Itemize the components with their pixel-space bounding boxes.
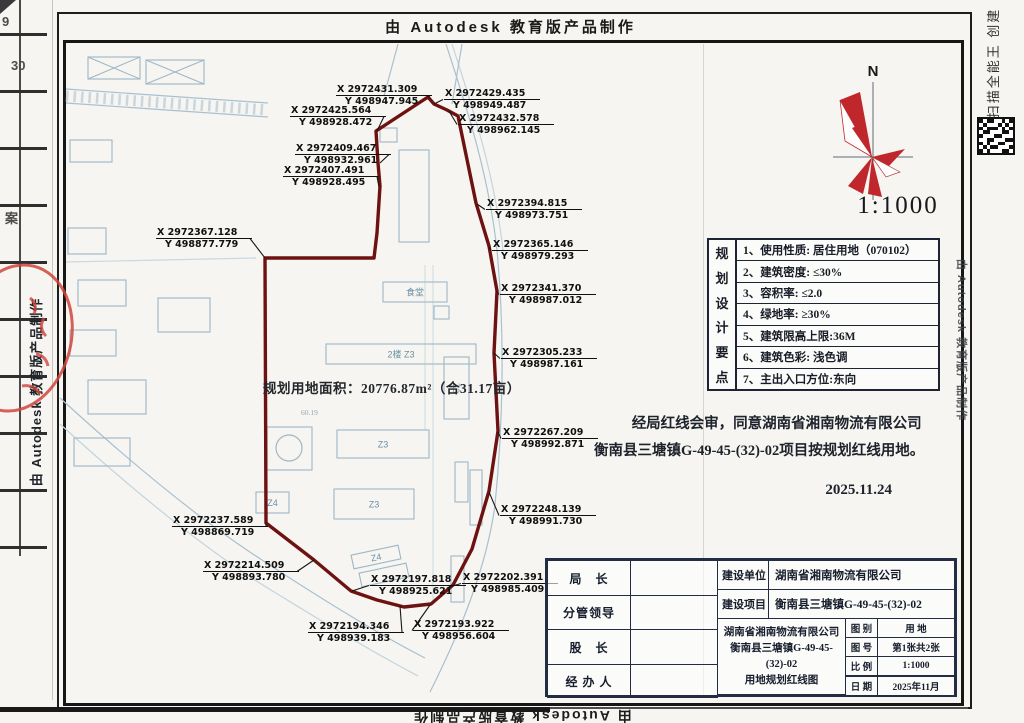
- coordinate-label: X 2972214.509Y 498893.780: [203, 560, 299, 583]
- coordinate-x: X 2972432.578: [458, 113, 554, 125]
- building-outline: [455, 462, 468, 502]
- coordinate-y: Y 498987.161: [501, 359, 597, 370]
- project-value: 衡南县三塘镇G-49-45-(32)-02: [768, 589, 955, 619]
- coordinate-label: X 2972431.309Y 498947.945: [336, 84, 432, 107]
- coordinate-x: X 2972409.467: [295, 143, 391, 155]
- coordinate-y: Y 498869.719: [172, 527, 268, 538]
- scanned-document-page: 930案 由 Autodesk 教育版产品制作 食堂2楼 Z3Z3Z3Z3Z4Z…: [0, 0, 1024, 723]
- scanner-watermark: 扫描全能王 创建: [983, 0, 999, 128]
- building-outline: [434, 306, 449, 319]
- requirement-item: 5、建筑限高上限:36M: [737, 326, 938, 347]
- official-signature-cell: [630, 664, 718, 698]
- coordinate-x: X 2972214.509: [203, 560, 299, 572]
- coordinate-y: Y 498991.730: [500, 516, 596, 527]
- coordinate-x: X 2972305.233: [501, 347, 597, 359]
- building-outline: Z4: [256, 492, 289, 513]
- coordinate-leader-line: [434, 100, 443, 105]
- planning-requirements-table: 规划设计要点 1、使用性质: 居住用地（070102）2、建筑密度: ≤30%3…: [707, 238, 940, 391]
- coordinate-y: Y 498928.472: [290, 117, 386, 128]
- coordinate-x: X 2972237.589: [172, 515, 268, 527]
- approval-date: 2025.11.24: [594, 477, 960, 504]
- coordinate-label: X 2972194.346Y 498939.183: [308, 621, 404, 644]
- approval-line2: 衡南县三塘镇G-49-45-(32)-02项目按规划红线用地。: [594, 438, 960, 465]
- requirement-item: 2、建筑密度: ≤30%: [737, 261, 938, 282]
- coordinate-label: X 2972341.370Y 498987.012: [500, 283, 596, 306]
- building-outline: Z3: [337, 430, 429, 458]
- coordinate-x: X 2972267.209: [502, 427, 598, 439]
- official-signature-cell: [630, 629, 718, 665]
- requirement-item: 7、主出入口方位:东向: [737, 369, 938, 389]
- side-title-char: 规: [715, 243, 728, 262]
- railway-band: [66, 89, 268, 117]
- org-line2: 衡南县三塘镇G-49-45-(32)-02: [718, 641, 845, 673]
- building-outline: [158, 298, 210, 332]
- official-signature-cell: [630, 560, 718, 596]
- coordinate-label: X 2972267.209Y 498992.871: [502, 427, 598, 450]
- building-label: Z3: [378, 440, 389, 450]
- requirement-item: 1、使用性质: 居住用地（070102）: [737, 240, 938, 261]
- building-outline: Z3: [334, 489, 414, 519]
- unit-value: 湖南省湘南物流有限公司: [768, 560, 955, 590]
- official-role-label: 股 长: [547, 629, 631, 665]
- coordinate-x: X 2972407.491: [283, 165, 379, 177]
- official-role-label: 经 办 人: [547, 664, 631, 698]
- coordinate-y: Y 498962.145: [458, 125, 554, 136]
- buildings-layer: 食堂2楼 Z3Z3Z3Z3Z4Z4: [68, 57, 482, 602]
- autodesk-banner-bottom: 由 Autodesk 教育版产品制作: [382, 706, 662, 723]
- coordinate-x: X 2972193.922: [413, 619, 509, 631]
- side-title-char: 计: [715, 317, 728, 336]
- coordinate-y: Y 498973.751: [486, 210, 582, 221]
- org-line1: 湖南省湘南物流有限公司: [724, 625, 840, 641]
- approval-note: 经局红线会审，同意湖南省湘南物流有限公司 衡南县三塘镇G-49-45-(32)-…: [594, 411, 960, 504]
- drawing-title: 用地规划红线图: [745, 673, 819, 689]
- side-title-char: 设: [715, 293, 728, 312]
- coordinate-leader-line: [352, 586, 369, 592]
- coordinate-y: Y 498992.871: [502, 439, 598, 450]
- coordinate-x: X 2972194.346: [308, 621, 404, 633]
- meta-value: 第1张共2张: [877, 637, 955, 657]
- building-outline: [68, 228, 106, 254]
- coordinate-leader-line: [297, 560, 314, 572]
- building-label: 食堂: [406, 287, 424, 298]
- autodesk-banner-right: 由 Autodesk 教育版产品制作: [954, 225, 970, 455]
- coordinate-y: Y 498925.621: [370, 586, 466, 597]
- meta-label: 图 号: [845, 637, 878, 657]
- unit-label: 建设单位: [717, 560, 769, 590]
- coordinate-x: X 2972431.309: [336, 84, 432, 96]
- building-outline: [146, 60, 204, 84]
- coordinate-label: X 2972193.922Y 498956.604: [413, 619, 509, 642]
- coordinate-x: X 2972202.391: [462, 572, 558, 584]
- approval-line1: 经局红线会审，同意湖南省湘南物流有限公司: [594, 411, 960, 438]
- circular-structure: [276, 435, 302, 461]
- side-title-char: 点: [715, 367, 728, 386]
- coordinate-label: X 2972407.491Y 498928.495: [283, 165, 379, 188]
- coordinate-label: X 2972237.589Y 498869.719: [172, 515, 268, 538]
- coordinate-y: Y 498956.604: [413, 631, 509, 642]
- coordinate-label: X 2972429.435Y 498949.487: [444, 88, 540, 111]
- official-role-label: 局 长: [547, 560, 631, 596]
- building-outline: [267, 427, 312, 470]
- north-arrow: N: [833, 63, 913, 200]
- coordinate-label: X 2972409.467Y 498932.961: [295, 143, 391, 166]
- requirement-item: 6、建筑色彩: 浅色调: [737, 347, 938, 368]
- coordinate-x: X 2972197.818: [370, 574, 466, 586]
- coordinate-x: X 2972341.370: [500, 283, 596, 295]
- building-outline: [399, 150, 429, 242]
- coordinate-x: X 2972394.815: [486, 198, 582, 210]
- coordinate-x: X 2972429.435: [444, 88, 540, 100]
- building-outline: 食堂: [383, 282, 447, 302]
- coordinate-leader-line: [250, 239, 265, 259]
- coordinate-y: Y 498987.012: [500, 295, 596, 306]
- building-outline: [88, 57, 140, 79]
- meta-value: 1:1000: [877, 656, 955, 676]
- coordinate-y: Y 498877.779: [156, 239, 252, 250]
- coordinate-y: Y 498979.293: [492, 251, 588, 262]
- meta-label: 比 例: [845, 656, 878, 676]
- meta-value: 2025年11月: [877, 676, 955, 696]
- side-title-char: 划: [715, 268, 728, 287]
- site-area-label: 规划用地面积：20776.87m²（合31.17亩）: [263, 377, 521, 397]
- north-label: N: [868, 63, 879, 80]
- building-label: 2楼 Z3: [387, 349, 414, 360]
- coordinate-label: X 2972365.146Y 498979.293: [492, 239, 588, 262]
- coordinate-label: X 2972197.818Y 498925.621: [370, 574, 466, 597]
- coordinate-label: X 2972248.139Y 498991.730: [500, 504, 596, 527]
- coordinate-label: X 2972305.233Y 498987.161: [501, 347, 597, 370]
- coordinate-x: X 2972367.128: [156, 227, 252, 239]
- building-outline: [70, 140, 112, 162]
- drawing-org-block: 湖南省湘南物流有限公司 衡南县三塘镇G-49-45-(32)-02 用地规划红线…: [717, 618, 846, 695]
- coordinate-y: Y 498985.409: [462, 584, 558, 595]
- building-outline: 2楼 Z3: [326, 344, 476, 364]
- qr-code: [977, 117, 1015, 155]
- official-signature-cell: [630, 595, 718, 630]
- coordinate-x: X 2972365.146: [492, 239, 588, 251]
- red-approval-stamp: [0, 258, 100, 448]
- requirement-item: 3、容积率: ≤2.0: [737, 283, 938, 304]
- requirement-item: 4、绿地率: ≥30%: [737, 304, 938, 325]
- coordinate-label: X 2972425.564Y 498928.472: [290, 105, 386, 128]
- coordinate-x: X 2972248.139: [500, 504, 596, 516]
- meta-label: 日 期: [845, 676, 878, 696]
- building-label: Z3: [369, 500, 380, 510]
- coordinate-y: Y 498928.495: [283, 177, 379, 188]
- building-label: Z4: [370, 552, 382, 564]
- meta-label: 图 别: [845, 618, 878, 638]
- side-title-char: 要: [715, 342, 728, 361]
- spot-elevation: 60.19: [301, 408, 318, 417]
- scale-label: 1:1000: [833, 192, 963, 220]
- official-role-label: 分管领导: [547, 595, 631, 630]
- building-label: Z4: [267, 498, 278, 508]
- building-outline: [380, 128, 397, 142]
- coordinate-label: X 2972432.578Y 498962.145: [458, 113, 554, 136]
- coordinate-label: X 2972394.815Y 498973.751: [486, 198, 582, 221]
- coordinate-label: X 2972367.128Y 498877.779: [156, 227, 252, 250]
- coordinate-y: Y 498893.780: [203, 572, 299, 583]
- coordinate-label: X 2972202.391Y 498985.409: [462, 572, 558, 595]
- title-block: 局 长分管领导股 长经 办 人 建设单位 湖南省湘南物流有限公司 建设项目 衡南…: [545, 558, 957, 697]
- project-label: 建设项目: [717, 589, 769, 619]
- coordinate-x: X 2972425.564: [290, 105, 386, 117]
- meta-value: 用 地: [877, 618, 955, 638]
- requirements-side-title: 规划设计要点: [709, 240, 737, 389]
- coordinate-y: Y 498939.183: [308, 633, 404, 644]
- coordinate-y: Y 498949.487: [444, 100, 540, 111]
